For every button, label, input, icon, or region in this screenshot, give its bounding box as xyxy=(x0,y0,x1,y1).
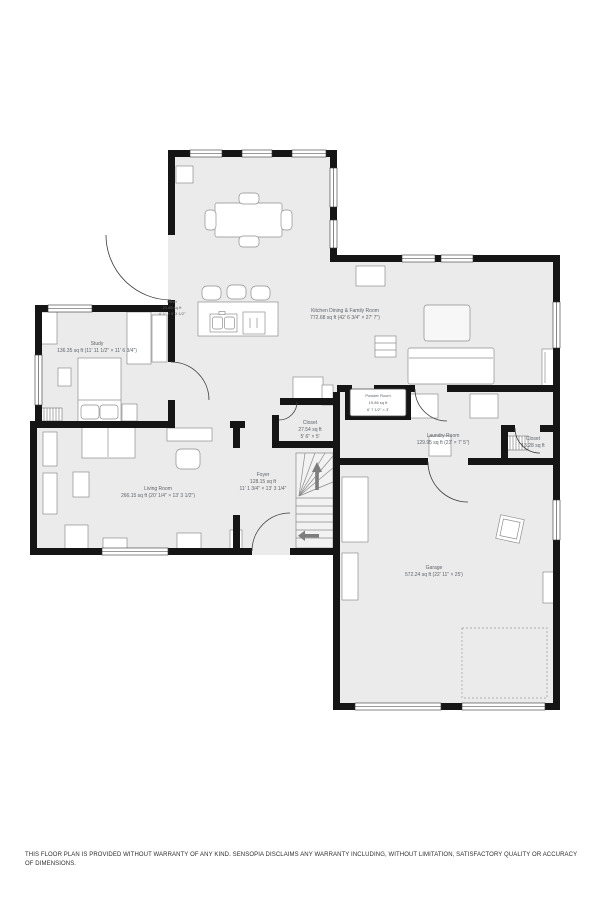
staircase xyxy=(296,453,333,548)
closet-right-label: Closet xyxy=(526,436,541,442)
window xyxy=(553,302,560,348)
closet-center-area: 27.54 sq ft xyxy=(298,427,322,433)
window xyxy=(330,168,337,207)
study-label: Study xyxy=(91,341,104,347)
window xyxy=(242,150,272,157)
window xyxy=(35,355,42,405)
sink-basin xyxy=(225,317,235,329)
window xyxy=(402,255,435,262)
pillow xyxy=(81,405,99,419)
sofa xyxy=(82,427,135,458)
storage-rack xyxy=(342,553,358,600)
console-table xyxy=(167,428,212,441)
dining-chair xyxy=(239,236,259,247)
nightstand xyxy=(122,404,137,421)
laundry-sink xyxy=(429,436,451,456)
closet-center-label: Closet xyxy=(303,420,318,426)
side-table xyxy=(73,472,89,497)
sink-basin xyxy=(213,317,223,329)
disclaimer-text: THIS FLOOR PLAN IS PROVIDED WITHOUT WARR… xyxy=(25,851,581,869)
bar-stool xyxy=(227,285,246,299)
living-room-label: Living Room xyxy=(144,486,172,492)
foyer-area: 128.15 sq ft xyxy=(250,479,277,485)
garage-door xyxy=(462,703,545,710)
other-dims: 4' 1" × 5' 3 1/2" xyxy=(159,311,186,316)
garage-area: 572.24 sq ft (22' 11" × 25') xyxy=(405,572,463,578)
coffee-table xyxy=(424,305,470,341)
dining-chair xyxy=(281,210,292,230)
dryer xyxy=(470,394,498,418)
dining-chair xyxy=(205,210,216,230)
wardrobe xyxy=(152,315,167,362)
water-heater xyxy=(496,515,524,543)
dishwasher xyxy=(243,312,265,334)
closet-right-area: 13.28 sq ft xyxy=(521,443,545,449)
laundry-area: 129.95 sq ft (23' × 7' 5") xyxy=(417,440,470,446)
other-label: Other xyxy=(167,299,178,304)
dining-table xyxy=(215,203,282,237)
entry-door-arc xyxy=(106,235,171,300)
window xyxy=(441,255,473,262)
living-room-area: 266.15 sq ft (20' 1/4" × 13' 3 1/2") xyxy=(121,493,195,499)
other-area: 21.65 sq ft xyxy=(163,305,183,310)
foyer-label: Foyer xyxy=(257,472,270,478)
floor-plan-page: Kitchen Dining & Family Room 772.68 sq f… xyxy=(0,0,600,900)
bar-stool xyxy=(202,286,221,300)
dining-chair xyxy=(239,193,259,204)
side-cabinet xyxy=(375,336,396,357)
foyer-dims: 11' 1 3/4" × 13' 3 1/4" xyxy=(240,486,287,492)
washer xyxy=(410,394,438,418)
window xyxy=(330,220,337,248)
powder-dims: 6' 7 1/2" × 3' xyxy=(367,407,389,412)
cabinet xyxy=(356,266,385,286)
window xyxy=(292,150,326,157)
stool xyxy=(58,368,71,386)
laundry-label: Laundry Room xyxy=(427,433,460,439)
powder-room-callout: Powder Room 19.86 sq ft 6' 7 1/2" × 3' xyxy=(350,389,406,416)
corner-cabinet xyxy=(176,166,193,183)
powder-area: 19.86 sq ft xyxy=(369,400,389,405)
window xyxy=(190,150,222,157)
closet-center-dims: 5' 6" × 5' xyxy=(300,434,319,440)
window xyxy=(553,500,560,540)
bar-stool xyxy=(251,286,270,300)
powder-label: Powder Room xyxy=(365,393,391,398)
shelf-unit xyxy=(43,473,57,514)
garage-label: Garage xyxy=(426,565,443,571)
window xyxy=(48,305,92,312)
kitchen-area: 772.68 sq ft (42' 6 3/4" × 27' 7") xyxy=(310,315,380,321)
faucet xyxy=(219,312,225,315)
kitchen-label: Kitchen Dining & Family Room xyxy=(311,308,379,314)
study-area: 136.35 sq ft (11' 11 1/2" × 11' 6 3/4") xyxy=(57,348,137,354)
storage-rack xyxy=(342,477,368,542)
window xyxy=(102,548,168,555)
armchair xyxy=(176,449,200,469)
wardrobe xyxy=(127,312,151,364)
pillow xyxy=(100,405,118,419)
floor-plan: Kitchen Dining & Family Room 772.68 sq f… xyxy=(0,0,600,840)
garage-door xyxy=(355,703,441,710)
shelf-unit xyxy=(43,432,57,466)
sofa xyxy=(408,348,494,384)
cabinet xyxy=(65,525,88,551)
